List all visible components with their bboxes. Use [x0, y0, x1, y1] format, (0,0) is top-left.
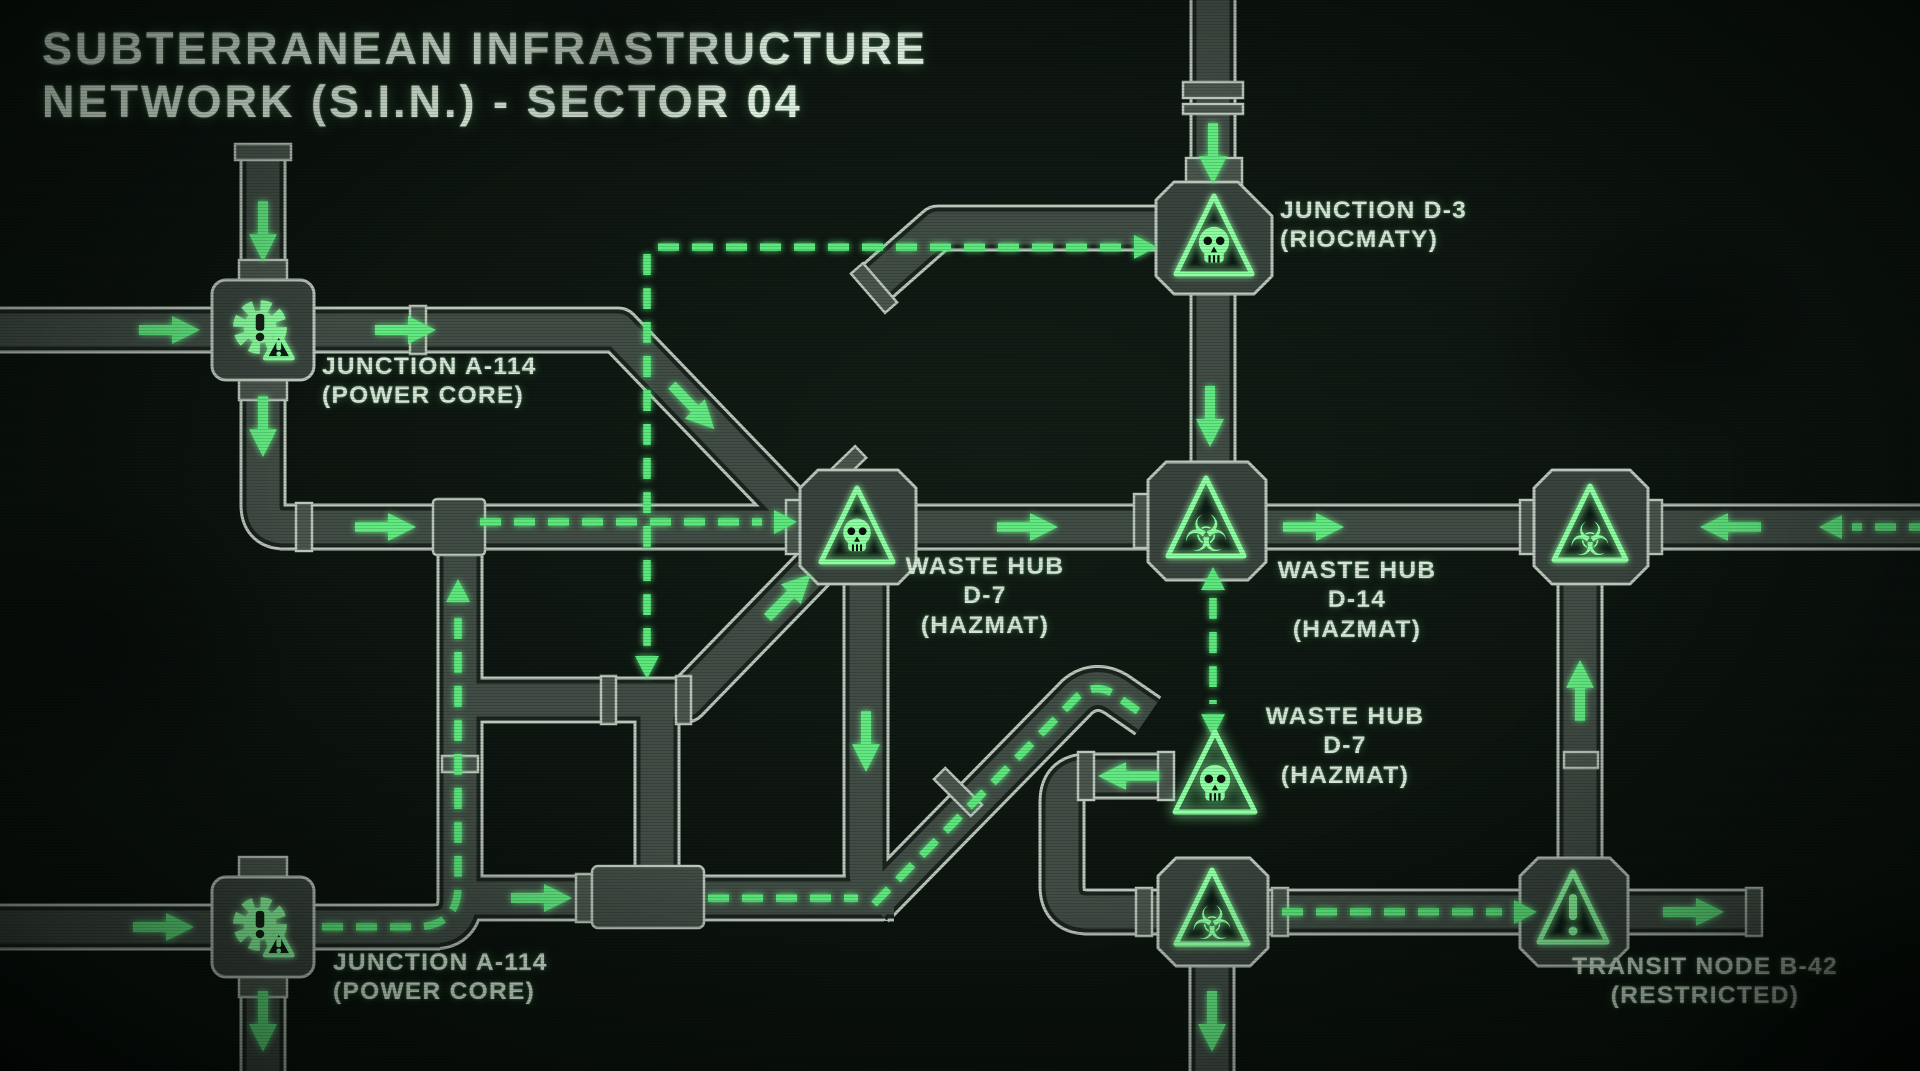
node-subtitle: (RESTRICTED)	[1540, 981, 1870, 1010]
node-name: JUNCTION A-114	[322, 352, 537, 381]
label-waste-hub-d14: WASTE HUB D-14 (HAZMAT)	[1227, 556, 1487, 644]
title-line-1: SUBTERRANEAN INFRASTRUCTURE	[42, 22, 928, 75]
label-junction-d3: JUNCTION D-3 (RIOCMATY)	[1280, 196, 1467, 255]
label-waste-hub-d7-lower: WASTE HUB D-7 (HAZMAT)	[1215, 702, 1475, 790]
node-id: D-7	[1215, 731, 1475, 760]
node-name: JUNCTION A-114	[333, 948, 548, 977]
label-waste-hub-d7: WASTE HUB D-7 (HAZMAT)	[855, 552, 1115, 640]
node-subtitle: (RIOCMATY)	[1280, 225, 1467, 254]
node-id: D-7	[855, 581, 1115, 610]
pipe-network-diagram: ☣ ☣ ☣	[0, 0, 1920, 1071]
label-junction-a114-bottom: JUNCTION A-114 (POWER CORE)	[333, 948, 548, 1007]
sin-sector-map: ☣ ☣ ☣ SUBTERRANEAN INFRASTRUCTURE NETWOR…	[0, 0, 1920, 1071]
svg-text:☣: ☣	[1569, 512, 1610, 566]
label-junction-a114-top: JUNCTION A-114 (POWER CORE)	[322, 352, 537, 411]
title-line-2: NETWORK (S.I.N.) - SECTOR 04	[42, 75, 928, 128]
node-name: WASTE HUB	[1227, 556, 1487, 585]
svg-text:☣: ☣	[1184, 505, 1229, 563]
node-subtitle: (HAZMAT)	[855, 611, 1115, 640]
node-name: WASTE HUB	[855, 552, 1115, 581]
label-transit-node-b42: TRANSIT NODE B-42 (RESTRICTED)	[1540, 952, 1870, 1011]
node-subtitle: (HAZMAT)	[1227, 615, 1487, 644]
node-subtitle: (HAZMAT)	[1215, 761, 1475, 790]
node-name: WASTE HUB	[1215, 702, 1475, 731]
svg-text:☣: ☣	[1191, 896, 1232, 950]
node-subtitle: (POWER CORE)	[333, 977, 548, 1006]
node-name: JUNCTION D-3	[1280, 196, 1467, 225]
page-title: SUBTERRANEAN INFRASTRUCTURE NETWORK (S.I…	[42, 22, 928, 128]
node-subtitle: (POWER CORE)	[322, 381, 537, 410]
node-name: TRANSIT NODE B-42	[1540, 952, 1870, 981]
node-id: D-14	[1227, 585, 1487, 614]
